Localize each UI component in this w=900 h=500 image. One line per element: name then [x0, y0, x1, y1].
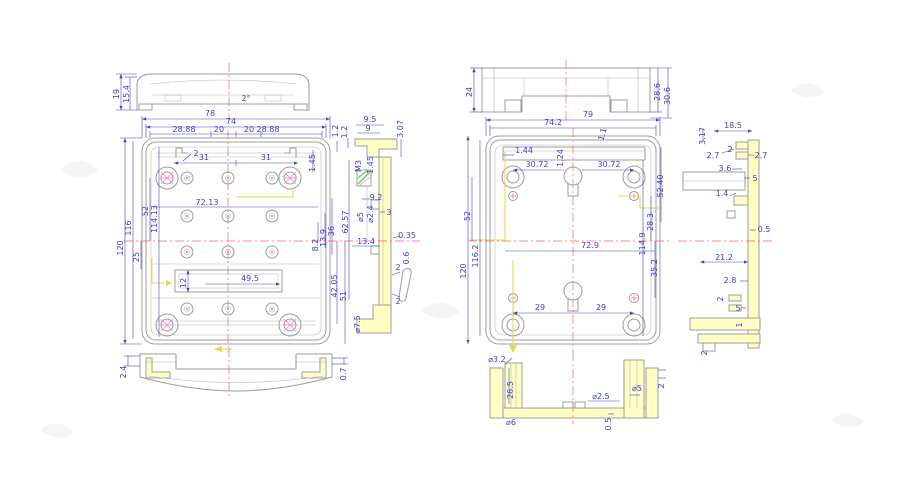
- watermark: [40, 83, 864, 437]
- dim-label: 120: [116, 240, 125, 255]
- section-highlight: [748, 140, 759, 348]
- section-highlight: [490, 368, 503, 418]
- dim-label: M3: [354, 160, 363, 172]
- dim-label: 2: [657, 383, 666, 388]
- dim-label: 31: [261, 153, 271, 162]
- dim-label: 29: [535, 303, 545, 312]
- section-highlight: [729, 295, 741, 301]
- dim-label: 2: [716, 296, 725, 301]
- part-outline: [137, 74, 309, 110]
- section-highlight: [357, 305, 391, 333]
- dim-label: 1.24: [556, 149, 565, 167]
- dim-label: 2: [193, 149, 198, 158]
- dim-label: 15.4: [122, 85, 131, 103]
- section-highlight: [146, 358, 170, 378]
- dim-label: 1.2: [331, 125, 340, 138]
- dim-label: 72.9: [581, 241, 599, 250]
- dim-label: 120: [459, 263, 468, 278]
- dim-label: 9: [365, 124, 370, 133]
- dim-label: 36: [327, 226, 336, 236]
- dim-label: 3.07: [396, 120, 405, 138]
- dim-label: 24: [465, 87, 474, 97]
- dim-label: 2: [700, 350, 709, 355]
- dim-label: 28.6: [653, 83, 662, 101]
- dim-label: 2.7: [707, 151, 720, 160]
- corner-boss: [623, 314, 645, 336]
- dim-label: ⌀5: [356, 212, 365, 222]
- lid-section-view: 1.2 9.5 9 3.07 M3 1.45 9.2 62.57 ⌀2.4 ⌀5…: [340, 115, 420, 333]
- dim-label: 74: [226, 117, 236, 126]
- dim-label: 1.2: [340, 126, 349, 139]
- dim-label: 0.35: [398, 231, 416, 240]
- base-front-section-view: ⌀3.2 26.5 ⌀6 ⌀2.5 ⌀5 0.5 2: [488, 352, 666, 430]
- latch-hook-detail: [399, 268, 411, 301]
- section-highlight: [698, 334, 760, 343]
- dim-label: 1.44: [515, 146, 533, 155]
- dim-label: 13.4: [357, 237, 375, 246]
- dim-label: 51: [339, 291, 348, 301]
- dim-label: 9.2: [370, 193, 383, 202]
- dim-label: 0.5: [604, 418, 613, 431]
- dim-label: 30.72: [526, 160, 549, 169]
- dim-label: 28.88: [173, 125, 196, 134]
- base-plan-view: 79 74.2 1.1 1.44 1.24 30.72 30.72 52.40 …: [459, 110, 672, 353]
- dim-label: 2: [727, 145, 732, 154]
- corner-boss: [623, 166, 645, 188]
- screw-hole: [509, 192, 518, 201]
- dim-label: 29: [596, 303, 606, 312]
- enclosure-drawing: 19 15.4 2°: [0, 0, 900, 500]
- section-highlight: [734, 196, 748, 205]
- dim-label: ⌀3.2: [488, 355, 506, 364]
- dim-label: 26.5: [506, 381, 515, 399]
- dim-label: 1.45: [308, 154, 317, 172]
- dim-label: 42.05: [330, 275, 339, 298]
- dim-label: 74.2: [544, 118, 562, 127]
- section-highlight: [302, 358, 326, 378]
- dim-label: 30.72: [598, 160, 621, 169]
- dim-label: 2°: [241, 94, 250, 103]
- dim-label: 1.4: [716, 189, 729, 198]
- dim-label: 28.88: [257, 125, 280, 134]
- dim-label: 1: [735, 322, 744, 327]
- dim-label: 72.13: [196, 198, 219, 207]
- dim-label: ⌀2.4: [366, 205, 375, 223]
- dim-label: 1.45: [366, 156, 375, 174]
- dim-label: 114.9: [638, 233, 647, 256]
- screw-hole: [630, 294, 639, 303]
- dimensions: 24 28.6 30.6: [465, 68, 672, 118]
- screw-bosses: [181, 172, 278, 315]
- section-highlight: [379, 157, 391, 305]
- dimensions: 19 15.4 2°: [112, 74, 251, 110]
- dim-label: 0.5: [758, 225, 771, 234]
- dim-label: 2.8: [724, 276, 737, 285]
- dim-label: 20: [214, 125, 224, 134]
- dim-label: 2.4: [119, 366, 128, 379]
- dim-label: 25: [132, 252, 141, 262]
- dim-label: 35.2: [650, 259, 659, 277]
- dim-label: 30.6: [663, 87, 672, 105]
- dim-label: 18.5: [724, 121, 742, 130]
- dim-label: 2: [395, 297, 400, 306]
- section-highlight: [736, 152, 748, 159]
- lid-plan-view: 78 74 28.88 20 20 28.88 2 31 31 1.2 1.45…: [116, 109, 348, 352]
- dim-label: 3.6: [719, 164, 732, 173]
- dim-label: 5: [735, 304, 740, 313]
- dim-label: 0.6: [402, 252, 411, 265]
- dim-label: 2: [395, 263, 400, 272]
- section-highlight: [736, 142, 748, 149]
- dim-label: 52: [141, 206, 150, 216]
- dim-label: 31: [199, 153, 209, 162]
- dim-label: 114.13: [150, 205, 159, 233]
- dim-label: 5: [752, 174, 757, 183]
- section-highlight: [690, 318, 760, 330]
- base-section-view: 3.17 18.5 2.7 2 2.7 3.6 5 1.4 0.5 21.2 2…: [678, 121, 774, 356]
- section-highlight: [355, 139, 397, 157]
- dim-label: 21.2: [715, 253, 733, 262]
- dim-label: 116: [124, 220, 133, 235]
- dim-label: 19: [112, 89, 121, 99]
- dim-label: 49.5: [241, 274, 259, 283]
- base-side-view: 24 28.6 30.6: [465, 60, 672, 120]
- dim-label: 28.3: [646, 213, 655, 231]
- dim-label: 3: [386, 208, 391, 217]
- dim-label: 12: [179, 278, 188, 288]
- slot-opening: [175, 270, 282, 292]
- dim-label: 3.17: [698, 127, 707, 145]
- part-outline: [140, 354, 332, 391]
- dim-label: 52.40: [656, 175, 665, 198]
- corner-boss: [279, 167, 301, 189]
- dim-label: ⌀2.5: [592, 392, 610, 401]
- dim-label: 116.2: [471, 245, 480, 268]
- dim-label: ⌀5: [632, 384, 642, 393]
- dim-label: 62.57: [341, 211, 350, 234]
- section-highlight: [646, 368, 658, 418]
- dim-label: ⌀6: [506, 418, 516, 427]
- dim-label: 78: [205, 109, 215, 118]
- dim-label: 1.1: [597, 127, 609, 142]
- dim-label: 79: [583, 110, 593, 119]
- dim-label: 2.7: [755, 151, 768, 160]
- dim-label: 20: [244, 125, 254, 134]
- dim-label: 52: [463, 211, 472, 221]
- technical-drawing-canvas: 19 15.4 2°: [0, 0, 900, 500]
- dim-label: ⌀7.5: [353, 315, 362, 333]
- dim-label: 9.5: [364, 115, 377, 124]
- dim-label: 0.7: [339, 368, 348, 381]
- lid-front-view: 2.4 0.7: [119, 348, 348, 396]
